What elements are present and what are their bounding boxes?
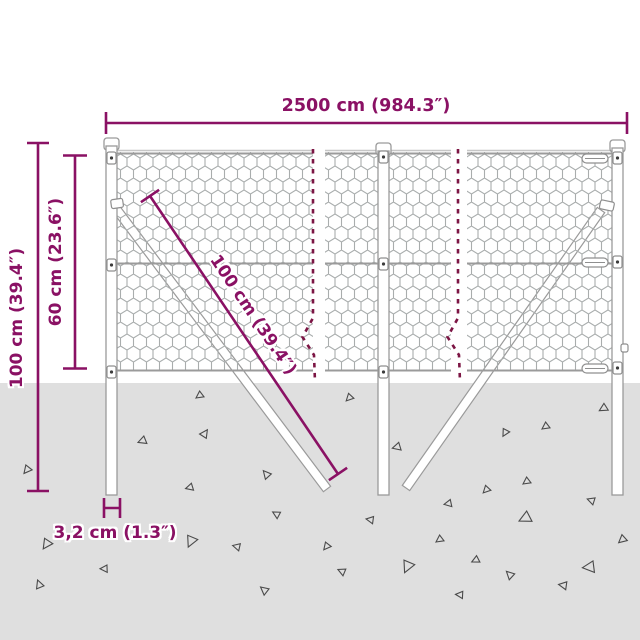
strut-bracket-left <box>111 198 124 209</box>
mesh-panel-2 <box>325 152 379 371</box>
post-right <box>612 148 623 495</box>
dim-width-label: 2500 cm (984.3″) <box>282 96 451 116</box>
mesh-panel-3 <box>389 152 451 371</box>
dim-total-height-label: 100 cm (39.4″) <box>7 248 27 388</box>
ground <box>0 383 640 640</box>
dim-post-width-label: 3,2 cm (1.3″) <box>54 523 177 543</box>
post-left <box>106 146 117 495</box>
hook-tab-right <box>621 344 628 352</box>
dim-mesh-height-line <box>63 156 87 369</box>
mesh-panels <box>114 152 613 371</box>
post-middle <box>378 151 389 495</box>
dim-mesh-height-label: 60 cm (23.6″) <box>46 198 66 326</box>
fence-dimension-diagram: 2500 cm (984.3″) 100 cm (39.4″) 60 cm (2… <box>0 0 640 640</box>
